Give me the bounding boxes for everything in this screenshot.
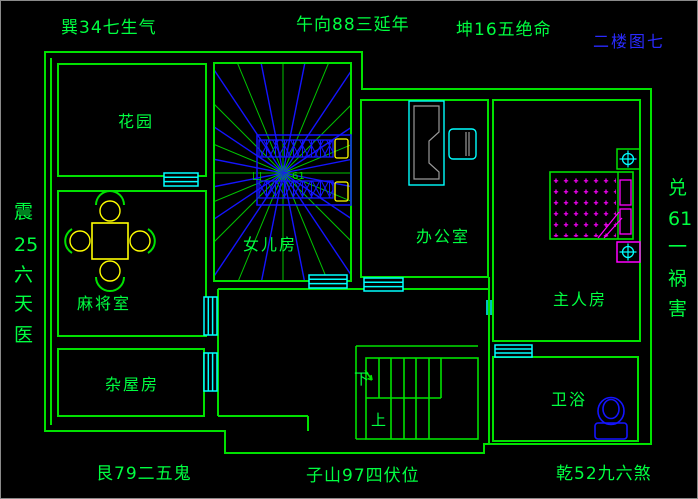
mahjong-table bbox=[92, 223, 128, 259]
door-hall-upper bbox=[204, 297, 217, 335]
svg-text:天: 天 bbox=[14, 293, 33, 315]
room-label-storage: 杂屋房 bbox=[105, 375, 159, 394]
window-bathroom bbox=[495, 345, 532, 357]
floorplan-canvas: 下 上 凵 61 bbox=[0, 0, 698, 499]
svg-text:害: 害 bbox=[668, 298, 687, 320]
svg-text:六: 六 bbox=[14, 264, 33, 286]
fengshui-compass-rays bbox=[108, 1, 458, 348]
svg-text:祸: 祸 bbox=[668, 268, 687, 290]
svg-text:医: 医 bbox=[14, 324, 33, 346]
door-hall-lower bbox=[204, 353, 217, 391]
compass-center-mark-left: 凵 bbox=[252, 171, 262, 183]
room-label-master: 主人房 bbox=[553, 290, 607, 309]
chair bbox=[70, 231, 90, 251]
svg-text:61: 61 bbox=[668, 208, 692, 230]
compass-center-mark-right: 61 bbox=[292, 171, 305, 182]
svg-text:一: 一 bbox=[668, 236, 687, 258]
chair bbox=[130, 231, 150, 251]
annotation-top-center: 午向88三延年 bbox=[296, 15, 410, 35]
window-office bbox=[364, 278, 403, 291]
window-garden bbox=[164, 173, 198, 186]
window-daughter bbox=[309, 275, 347, 288]
room-label-garden: 花园 bbox=[118, 112, 154, 131]
office-chair bbox=[449, 129, 476, 159]
annotation-top-right: 坤16五绝命 bbox=[456, 20, 552, 40]
lamp-symbol-bottom bbox=[617, 242, 640, 262]
chair bbox=[100, 201, 120, 221]
svg-text:兑: 兑 bbox=[668, 177, 687, 199]
annotation-bottom-left: 艮79二五鬼 bbox=[96, 464, 192, 484]
svg-text:震: 震 bbox=[14, 201, 33, 223]
mahjong-table-set bbox=[65, 191, 155, 291]
office-desk bbox=[409, 101, 476, 185]
pillow bbox=[620, 180, 631, 205]
annotation-top-left: 巽34七生气 bbox=[61, 18, 157, 38]
room-mahjong-outline bbox=[58, 191, 206, 336]
svg-text:25: 25 bbox=[14, 234, 38, 256]
room-label-mahjong: 麻将室 bbox=[77, 294, 131, 313]
master-bed bbox=[550, 172, 633, 239]
annotation-bottom-center: 子山97四伏位 bbox=[306, 466, 420, 486]
stair-down-label: 下 bbox=[354, 370, 369, 388]
annotation-right-vertical: 兑 61 一 祸 害 bbox=[668, 177, 692, 320]
annotation-floor-title: 二楼图七 bbox=[593, 32, 665, 51]
lamp-symbol-top bbox=[617, 149, 640, 169]
annotation-bottom-right: 乾52九六煞 bbox=[556, 464, 652, 484]
room-office-outline bbox=[361, 100, 488, 277]
hall-walls bbox=[218, 277, 489, 444]
annotation-left-vertical: 震 25 六 天 医 bbox=[14, 201, 38, 346]
room-label-bathroom: 卫浴 bbox=[551, 390, 587, 409]
room-label-office: 办公室 bbox=[416, 227, 470, 246]
room-label-daughter: 女儿房 bbox=[243, 235, 297, 254]
pillow bbox=[620, 209, 631, 234]
stair-up-label: 上 bbox=[371, 411, 386, 429]
chair bbox=[100, 261, 120, 281]
toilet bbox=[595, 398, 627, 440]
floorplan-drawing: 下 上 凵 61 bbox=[1, 1, 698, 499]
